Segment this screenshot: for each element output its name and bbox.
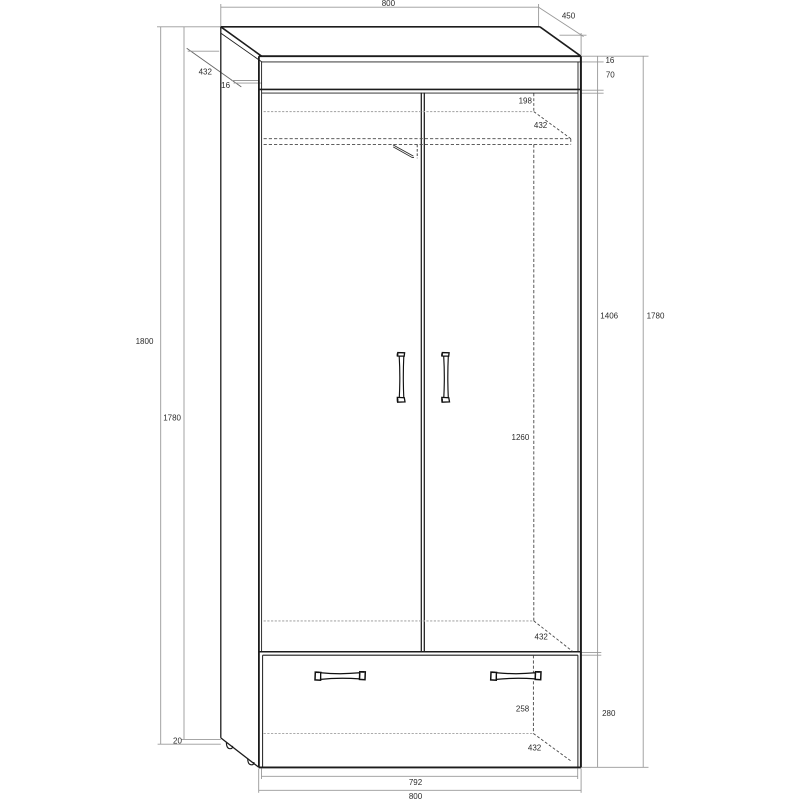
svg-text:16: 16 xyxy=(605,56,614,65)
svg-text:70: 70 xyxy=(606,70,615,79)
svg-text:800: 800 xyxy=(409,792,423,800)
svg-text:432: 432 xyxy=(528,744,542,753)
svg-text:450: 450 xyxy=(562,11,576,20)
svg-text:800: 800 xyxy=(382,0,396,8)
svg-text:432: 432 xyxy=(534,121,548,130)
svg-text:198: 198 xyxy=(519,96,533,105)
svg-text:1260: 1260 xyxy=(512,433,530,442)
svg-text:1780: 1780 xyxy=(163,413,181,422)
svg-text:1800: 1800 xyxy=(136,337,154,346)
svg-text:280: 280 xyxy=(602,709,616,718)
svg-text:792: 792 xyxy=(409,778,423,787)
svg-text:20: 20 xyxy=(173,737,182,746)
svg-text:432: 432 xyxy=(535,632,549,641)
svg-text:1780: 1780 xyxy=(647,311,665,320)
svg-text:258: 258 xyxy=(516,705,530,714)
svg-text:1406: 1406 xyxy=(600,312,618,321)
svg-text:432: 432 xyxy=(199,68,213,77)
svg-text:16: 16 xyxy=(221,81,230,90)
